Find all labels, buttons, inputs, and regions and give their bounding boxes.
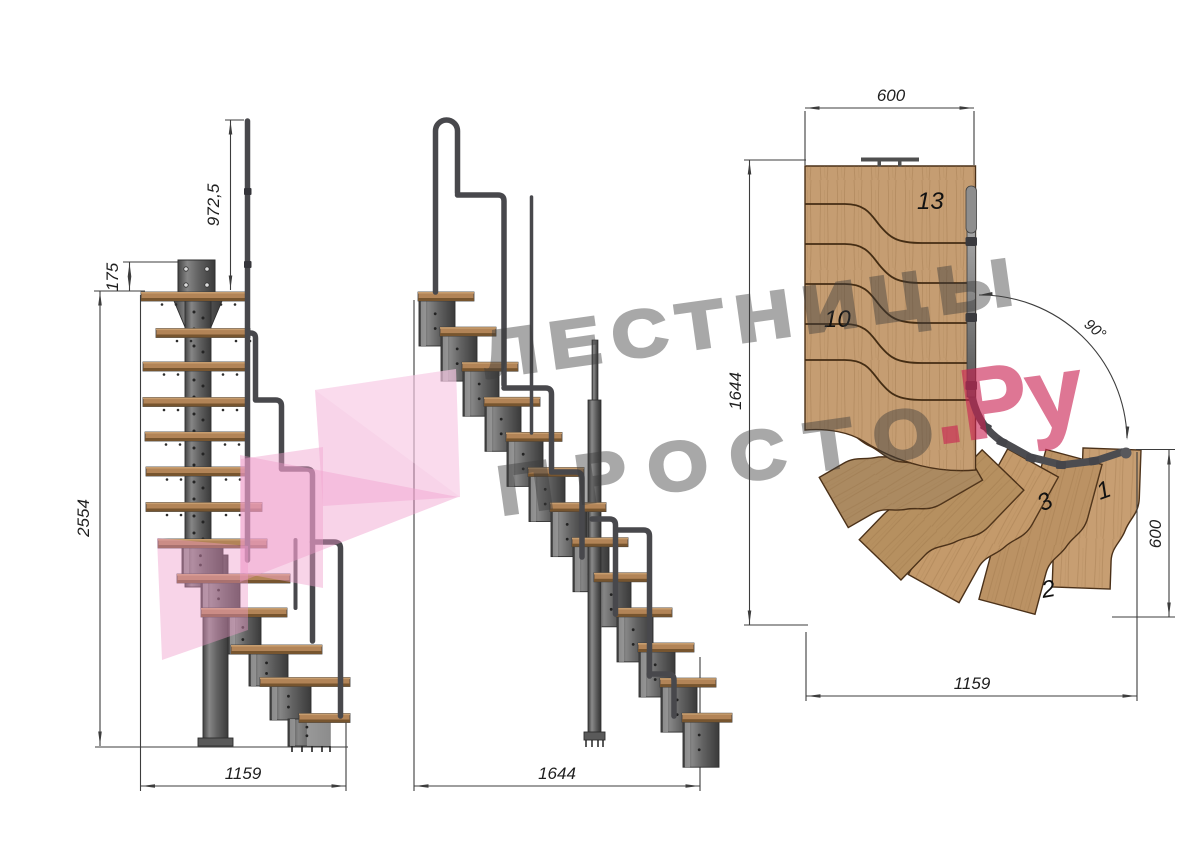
svg-text:600: 600 [1146, 519, 1165, 548]
svg-text:1644: 1644 [726, 372, 745, 410]
svg-text:.Ру: .Ру [925, 334, 1090, 466]
svg-text:2554: 2554 [74, 499, 93, 538]
svg-text:1159: 1159 [225, 764, 262, 783]
svg-text:175: 175 [103, 262, 122, 291]
svg-text:1159: 1159 [954, 674, 991, 693]
svg-text:1644: 1644 [538, 764, 576, 783]
svg-text:600: 600 [877, 86, 906, 105]
svg-text:13: 13 [917, 188, 944, 215]
svg-text:972,5: 972,5 [204, 183, 223, 226]
